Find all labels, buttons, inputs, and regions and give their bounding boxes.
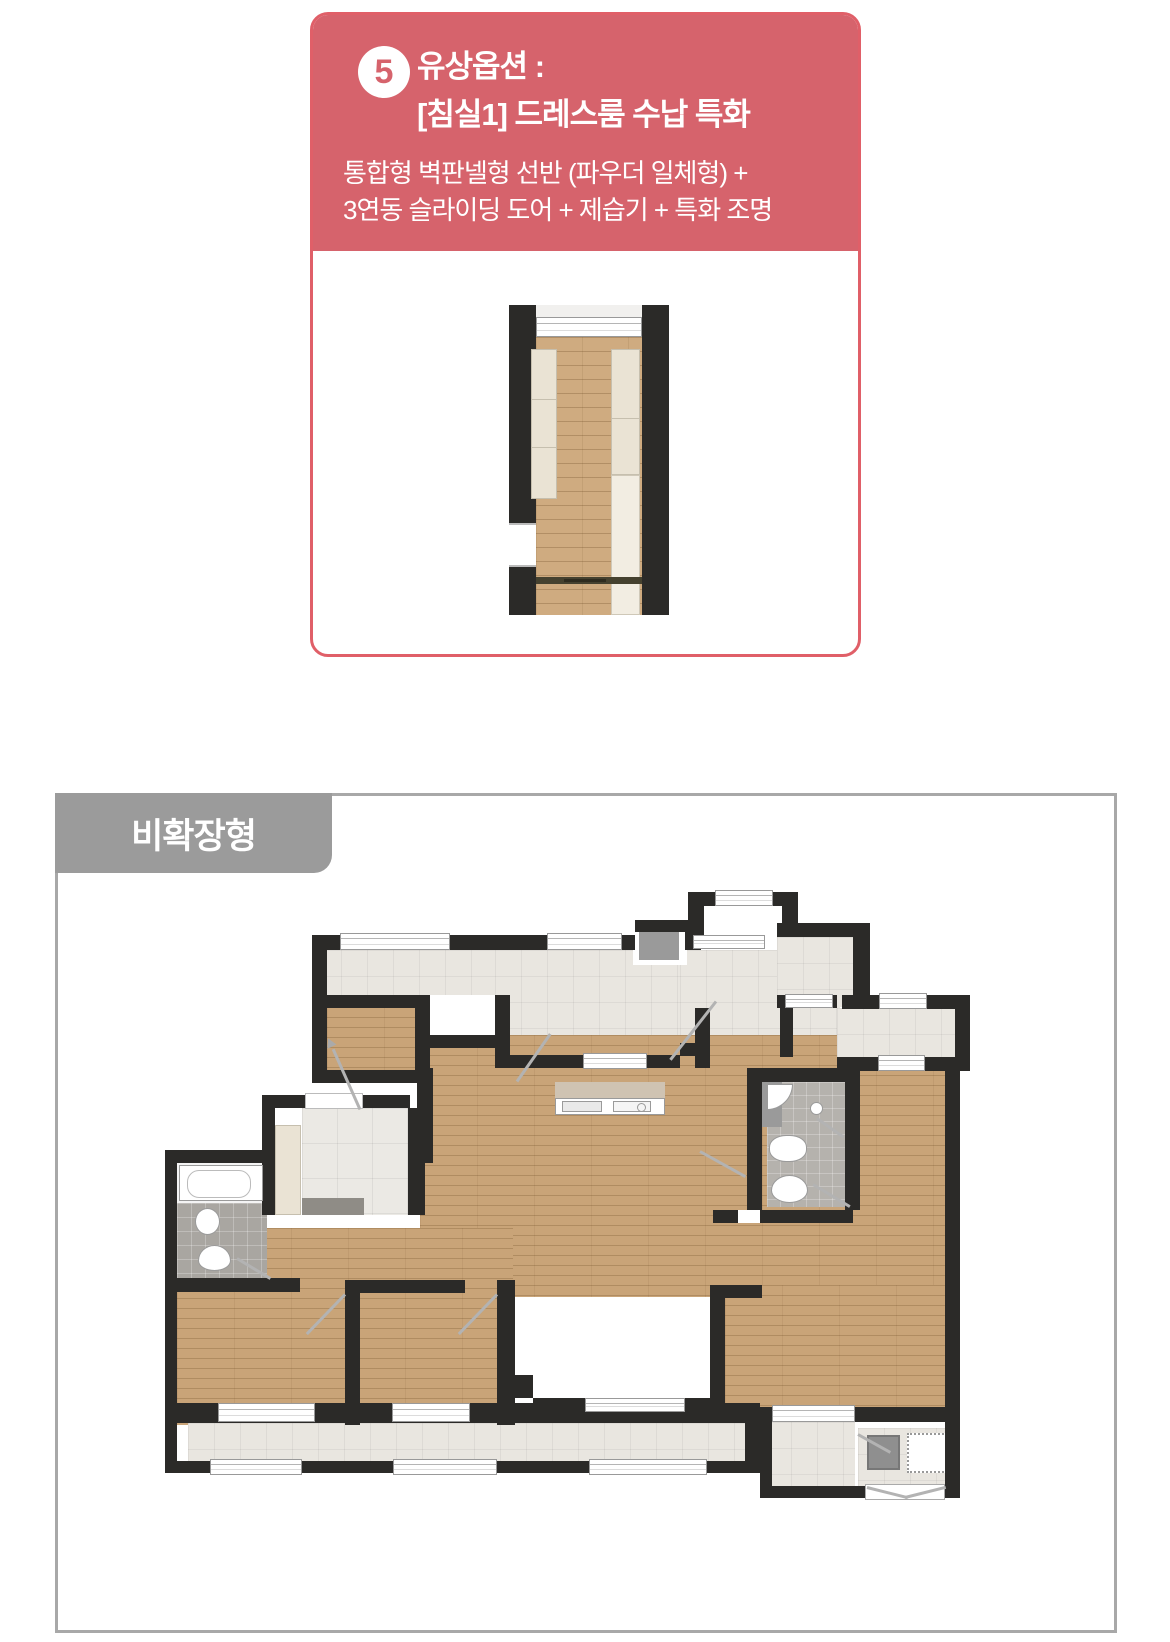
wall — [165, 1150, 177, 1473]
wall — [747, 1068, 860, 1082]
wall — [352, 1280, 465, 1293]
mini-window — [536, 317, 642, 337]
balcony-right-tile — [765, 1422, 855, 1486]
wall — [845, 1082, 860, 1210]
wall — [635, 920, 691, 932]
wall — [945, 1071, 960, 1407]
sink-drain — [637, 1103, 646, 1112]
bedroom2-window — [218, 1403, 315, 1422]
balcony-window — [393, 1459, 497, 1475]
kitchen-window — [583, 1053, 647, 1069]
option-title-line2: [침실1] 드레스룸 수납 특화 — [417, 91, 847, 139]
right-hall-tile — [837, 1008, 957, 1057]
wall — [177, 1278, 300, 1292]
wall — [713, 1210, 853, 1223]
bedroom1-window — [772, 1405, 855, 1422]
option-card: 5 유상옵션 : [침실1] 드레스룸 수납 특화 통합형 벽판넬형 선반 (파… — [310, 12, 861, 657]
vanity-sink — [769, 1135, 807, 1162]
bedroom1-floor — [725, 1285, 945, 1422]
mini-door-opening — [509, 523, 536, 567]
toilet — [771, 1175, 808, 1203]
shower-drain — [810, 1102, 823, 1115]
kitchen-counter-top — [555, 1082, 665, 1098]
window — [340, 933, 450, 950]
wall — [853, 923, 870, 1000]
option-desc-line2: 3연동 슬라이딩 도어 + 제습기 + 특화 조명 — [343, 192, 848, 229]
wall — [680, 1043, 710, 1056]
window — [879, 993, 927, 1009]
balcony-window — [210, 1459, 302, 1475]
window — [715, 890, 773, 906]
balcony-tile — [188, 1423, 760, 1461]
option-title-line1: 유상옵션 : — [417, 43, 847, 91]
balcony-window — [589, 1459, 707, 1475]
option-card-title: 유상옵션 : [침실1] 드레스룸 수납 특화 — [417, 43, 847, 139]
main-floor-plan — [165, 875, 970, 1500]
shoe-cabinet — [275, 1125, 301, 1215]
plan-type-label: 비확장형 — [131, 808, 256, 859]
wall — [312, 995, 430, 1008]
wall — [262, 1095, 275, 1215]
window — [878, 1055, 925, 1071]
wall — [408, 1108, 425, 1215]
flyer-page: 5 유상옵션 : [침실1] 드레스룸 수납 특화 통합형 벽판넬형 선반 (파… — [0, 0, 1170, 1642]
option-number-badge: 5 — [358, 46, 410, 98]
stove — [562, 1101, 602, 1112]
window — [693, 935, 765, 949]
bedroom3-window — [392, 1403, 470, 1422]
option-card-description: 통합형 벽판넬형 선반 (파우더 일체형) + 3연동 슬라이딩 도어 + 제습… — [343, 155, 848, 229]
wall — [842, 995, 879, 1009]
mini-wall-right — [642, 305, 669, 615]
wall — [312, 1070, 430, 1083]
hallway-tile-left — [315, 950, 495, 995]
window — [785, 994, 833, 1008]
wall — [955, 995, 970, 1057]
mini-shelf-left — [531, 349, 557, 499]
wall — [645, 1055, 680, 1068]
wall — [503, 1375, 533, 1398]
mini-wall-left-lower — [509, 567, 536, 615]
future-appliance-dashed — [907, 1433, 947, 1473]
window — [547, 933, 622, 950]
wall — [495, 1055, 585, 1068]
toilet — [198, 1245, 231, 1271]
sink — [195, 1208, 220, 1235]
wall — [420, 1035, 495, 1048]
option-desc-line1: 통합형 벽판넬형 선반 (파우더 일체형) + — [343, 155, 848, 192]
wall — [760, 1422, 772, 1486]
wall — [747, 1080, 762, 1210]
option-number: 5 — [375, 53, 394, 92]
bath-door-opening — [738, 1210, 760, 1223]
plan-type-tab: 비확장형 — [55, 793, 332, 873]
dressing-room-mini-plan — [509, 305, 669, 615]
wall — [312, 950, 327, 1083]
mini-door-track — [564, 579, 606, 582]
bathtub-inner — [187, 1170, 251, 1198]
entry-mat — [302, 1198, 364, 1215]
mini-shelf-right — [611, 349, 640, 475]
duct-gray-square — [639, 932, 679, 960]
mini-cabinet-right — [611, 475, 640, 615]
living-window — [585, 1398, 685, 1412]
wall — [945, 1422, 960, 1486]
wall — [165, 1150, 270, 1163]
